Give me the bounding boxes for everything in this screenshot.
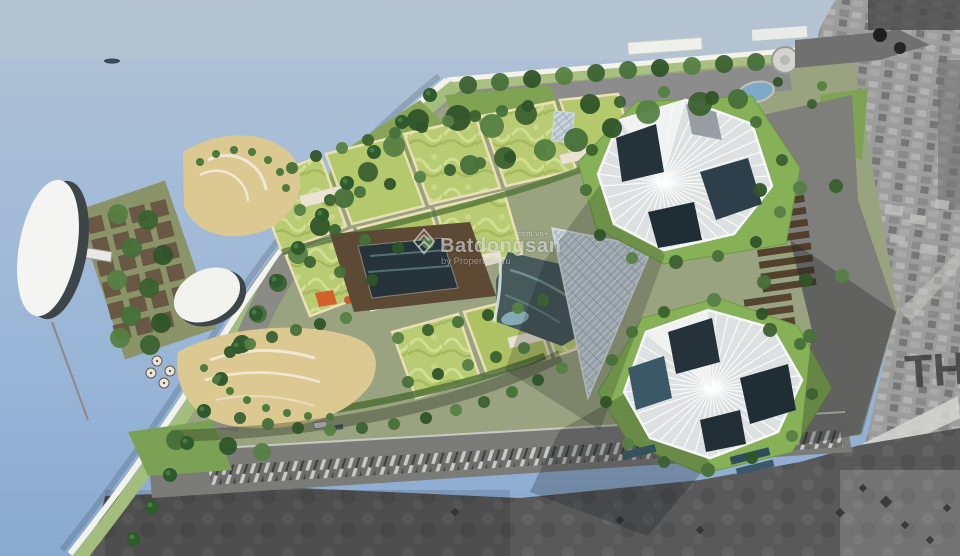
tree (532, 374, 544, 386)
tree (334, 266, 346, 278)
tree (606, 354, 618, 366)
palm-crown (148, 503, 153, 508)
tree (658, 456, 670, 468)
tree (707, 293, 721, 307)
tree (482, 309, 494, 321)
tree (518, 342, 530, 354)
tree (329, 224, 341, 236)
palm-crown (426, 91, 431, 96)
tree (422, 324, 434, 336)
satellite-dark-roof (868, 0, 960, 30)
tree (786, 430, 798, 442)
tree (219, 437, 237, 455)
shrub (212, 376, 220, 384)
shrub (200, 364, 208, 372)
tree (358, 162, 378, 182)
palm-tree (127, 532, 141, 546)
palm-crown (200, 407, 205, 412)
tree (750, 116, 762, 128)
shrub (304, 412, 312, 420)
tree (636, 100, 660, 124)
palm-tree (423, 88, 437, 102)
tree (138, 210, 158, 230)
tree (314, 318, 326, 330)
tree (773, 77, 783, 87)
tree (450, 404, 462, 416)
palm-tree (197, 404, 211, 418)
tree (356, 422, 368, 434)
tree (587, 64, 605, 82)
tree (580, 184, 592, 196)
tree (763, 323, 777, 337)
palm-crown (294, 244, 299, 249)
tree (286, 162, 298, 174)
tree (362, 134, 374, 146)
tree (108, 204, 128, 224)
tree (121, 306, 141, 326)
tree (420, 412, 432, 424)
tree (384, 178, 396, 190)
palm-tree (231, 340, 245, 354)
tree (478, 396, 490, 408)
tree (139, 278, 159, 298)
shrub (212, 150, 220, 158)
boat (104, 58, 120, 63)
tree (140, 335, 160, 355)
tree (324, 194, 336, 206)
shrub (283, 409, 291, 417)
tree (294, 204, 306, 216)
tree (555, 67, 573, 85)
tree (462, 359, 474, 371)
tree (750, 236, 762, 248)
tree (340, 312, 352, 324)
tree (304, 256, 316, 268)
palm-crown (252, 310, 257, 315)
masterplan-scene: TH (0, 0, 960, 556)
satellite-street (938, 60, 960, 210)
palm-tree (291, 241, 305, 255)
tree (491, 73, 509, 91)
tree (244, 338, 256, 350)
tree (793, 181, 807, 195)
palm-crown (234, 343, 239, 348)
palm-tree (249, 307, 263, 321)
tree (712, 250, 724, 262)
tree (619, 61, 637, 79)
shrub (248, 148, 256, 156)
tree (753, 183, 767, 197)
palm-tree (269, 274, 283, 288)
tree (747, 53, 765, 71)
tree (807, 99, 817, 109)
tree (817, 81, 827, 91)
tree (389, 127, 401, 139)
tree (107, 270, 127, 290)
tree (580, 94, 600, 114)
tree (153, 245, 173, 265)
tree (336, 142, 348, 154)
tree (829, 179, 843, 193)
tree (432, 368, 444, 380)
tree (480, 114, 504, 138)
tree (512, 302, 524, 314)
palm-tree (395, 115, 409, 129)
tree (602, 118, 622, 138)
tree (392, 332, 404, 344)
shrub (264, 156, 272, 164)
shrub (276, 168, 284, 176)
tree (669, 255, 683, 269)
palm-crown (343, 179, 348, 184)
tree (506, 386, 518, 398)
palm-crown (166, 471, 171, 476)
tree (388, 418, 400, 430)
satellite-rooftop-text: TH (903, 342, 960, 398)
tree (600, 396, 612, 408)
aerial-masterplan-rendering: TH (0, 0, 960, 556)
palm-tree (340, 176, 354, 190)
tree (151, 313, 171, 333)
tree (324, 424, 336, 436)
shrub (262, 404, 270, 412)
palm-crown (318, 211, 323, 216)
tree (757, 275, 771, 289)
tree (564, 128, 588, 152)
tree (469, 110, 481, 122)
tree (534, 145, 546, 157)
tree (334, 188, 354, 208)
tree (799, 273, 813, 287)
palm-tree (163, 468, 177, 482)
palm-crown (398, 118, 403, 123)
tree (442, 115, 454, 127)
tree (756, 308, 768, 320)
tree (651, 59, 669, 77)
orange-canopy (315, 290, 337, 307)
tree (504, 151, 516, 163)
tree (614, 96, 626, 108)
tree (705, 91, 719, 105)
tree (701, 463, 715, 477)
palm-tree (315, 208, 329, 222)
tree (522, 100, 534, 112)
tree (110, 328, 130, 348)
tree (359, 234, 371, 246)
tree (496, 105, 508, 117)
tree (292, 422, 304, 434)
tree (490, 351, 502, 363)
tree (392, 242, 404, 254)
tree (658, 306, 670, 318)
tree (776, 154, 788, 166)
tree (537, 294, 549, 306)
tree (626, 326, 638, 338)
tree (354, 186, 366, 198)
palm-crown (272, 277, 277, 282)
tree (474, 157, 486, 169)
palm-crown (370, 148, 375, 153)
shrub (326, 413, 334, 421)
shrub (282, 184, 290, 192)
tree (122, 238, 142, 258)
tree (594, 229, 606, 241)
tree (402, 376, 414, 388)
tree (266, 331, 278, 343)
shrub (243, 396, 251, 404)
shrub (230, 146, 238, 154)
tree (658, 86, 670, 98)
tree (444, 164, 456, 176)
asphalt-light-corner (840, 470, 960, 556)
tree (803, 329, 817, 343)
tree (556, 362, 568, 374)
shrub (226, 387, 234, 395)
tree (416, 121, 428, 133)
tree (290, 324, 302, 336)
tree (774, 206, 786, 218)
palm-crown (130, 535, 135, 540)
palm-tree (367, 145, 381, 159)
tree (366, 274, 378, 286)
dark-pool (358, 238, 458, 298)
tree (253, 443, 271, 461)
tree (806, 388, 818, 400)
tree (414, 171, 426, 183)
tree (262, 418, 274, 430)
tree (422, 237, 434, 249)
tree (728, 89, 748, 109)
tree (310, 150, 322, 162)
palm-tree (145, 500, 159, 514)
tree (234, 412, 246, 424)
asphalt-dark-half (105, 490, 510, 556)
tree (683, 57, 701, 75)
tree (746, 452, 758, 464)
tree (452, 316, 464, 328)
tree (715, 55, 733, 73)
tree (626, 252, 638, 264)
tree (622, 438, 634, 450)
tree (459, 76, 477, 94)
shrub (196, 158, 204, 166)
tree (835, 269, 849, 283)
roundabout-center (780, 55, 790, 65)
palm-tree (180, 436, 194, 450)
tree (523, 70, 541, 88)
tree (586, 144, 598, 156)
palm-crown (183, 439, 188, 444)
